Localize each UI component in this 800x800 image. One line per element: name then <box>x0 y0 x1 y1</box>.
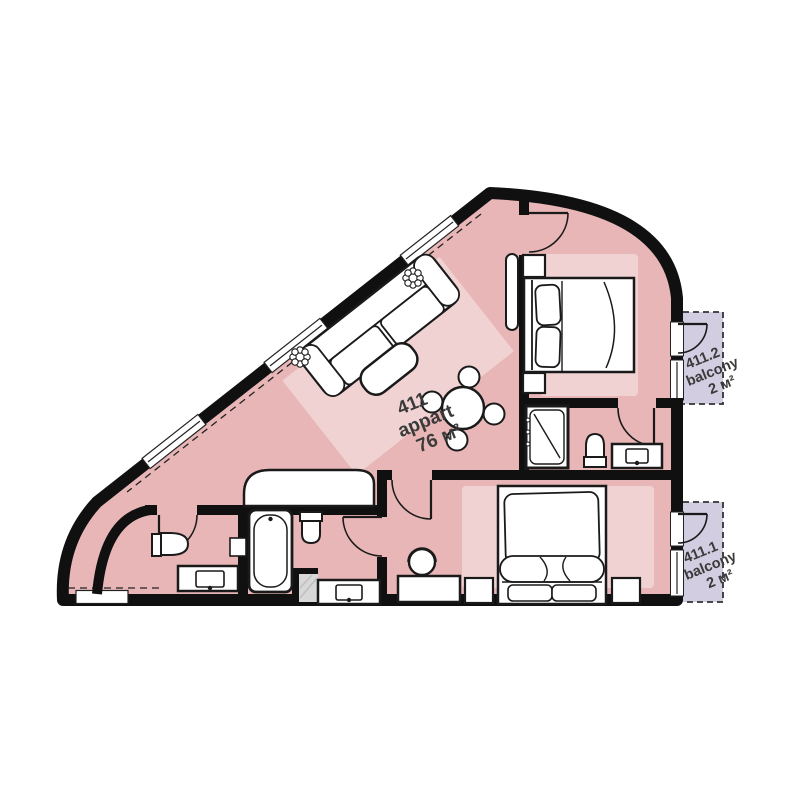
pillow <box>552 585 596 601</box>
faucet-icon <box>268 517 272 521</box>
faucet-icon <box>208 586 212 590</box>
sink-vanity-wc <box>178 566 238 591</box>
blanket-roll <box>500 556 604 582</box>
pillow <box>508 585 552 601</box>
floor-plan: 411 appart 76 м² 411.2 balcony 2 м² 411.… <box>0 0 800 800</box>
bed-1 <box>524 278 634 372</box>
toilet-bathroom <box>300 512 322 543</box>
plant-icon <box>290 347 310 367</box>
cabinet <box>506 254 518 330</box>
dining-chair <box>459 367 480 388</box>
toilet-shower-room <box>584 434 606 467</box>
shower <box>526 406 568 468</box>
sink-vanity-bathroom <box>318 580 380 604</box>
faucet-icon <box>347 598 351 602</box>
wc-shelf <box>230 538 246 556</box>
window-bedroom-2 <box>671 550 684 596</box>
nightstand <box>523 373 545 393</box>
shaft <box>299 574 318 602</box>
sink-vanity-shower-room <box>612 444 662 468</box>
bed-2 <box>498 486 606 604</box>
floor-plan-canvas: 411 appart 76 м² 411.2 balcony 2 м² 411.… <box>0 0 800 800</box>
toilet-wc <box>152 533 188 556</box>
plant-icon <box>403 268 423 288</box>
pillow <box>535 327 560 368</box>
bathtub <box>249 510 292 592</box>
window-bedroom-1 <box>671 360 684 400</box>
nightstand <box>465 578 493 603</box>
faucet-icon <box>635 461 639 465</box>
desk <box>398 576 460 602</box>
wardrobe <box>244 470 374 506</box>
stool <box>408 548 436 575</box>
duvet <box>504 492 600 564</box>
nightstand <box>612 578 640 603</box>
pillow <box>535 284 561 325</box>
nightstand <box>523 255 545 277</box>
dining-chair <box>484 404 505 425</box>
